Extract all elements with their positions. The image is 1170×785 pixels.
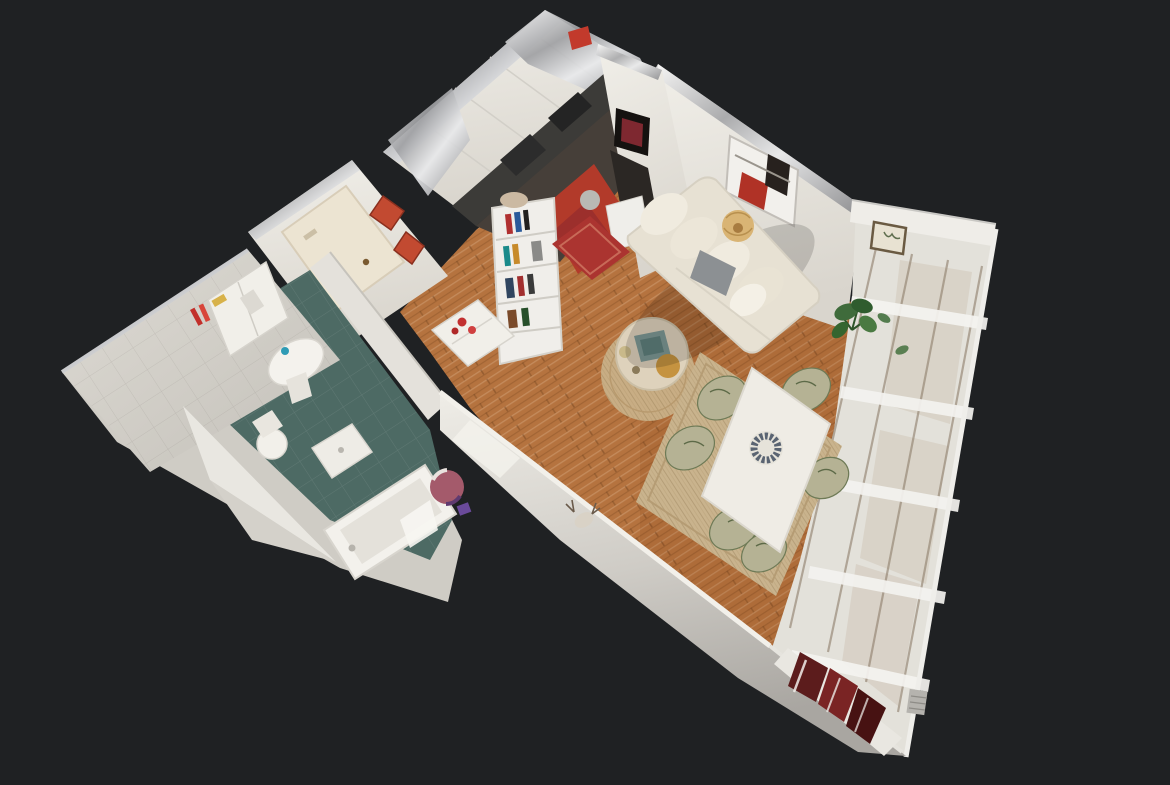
small-decor <box>632 366 640 374</box>
shelf-top-decor <box>500 192 528 208</box>
pendant-lamp <box>722 210 754 242</box>
teal-bottle <box>281 347 289 355</box>
book <box>507 310 518 329</box>
dollhouse-3d-view[interactable] <box>0 0 1170 785</box>
book <box>531 241 543 262</box>
vent-grille <box>906 689 927 715</box>
bathtub-drain <box>349 545 356 552</box>
red-flower <box>468 326 476 334</box>
lamp-center <box>733 223 743 233</box>
trash-bin <box>580 190 600 210</box>
vent-body <box>906 689 927 715</box>
botanical-art <box>871 222 906 254</box>
red-flower <box>458 318 467 327</box>
door-handle <box>363 259 369 265</box>
red-flower <box>452 328 459 335</box>
washbasin-drain <box>338 447 344 453</box>
viewer-stage <box>0 0 1170 785</box>
